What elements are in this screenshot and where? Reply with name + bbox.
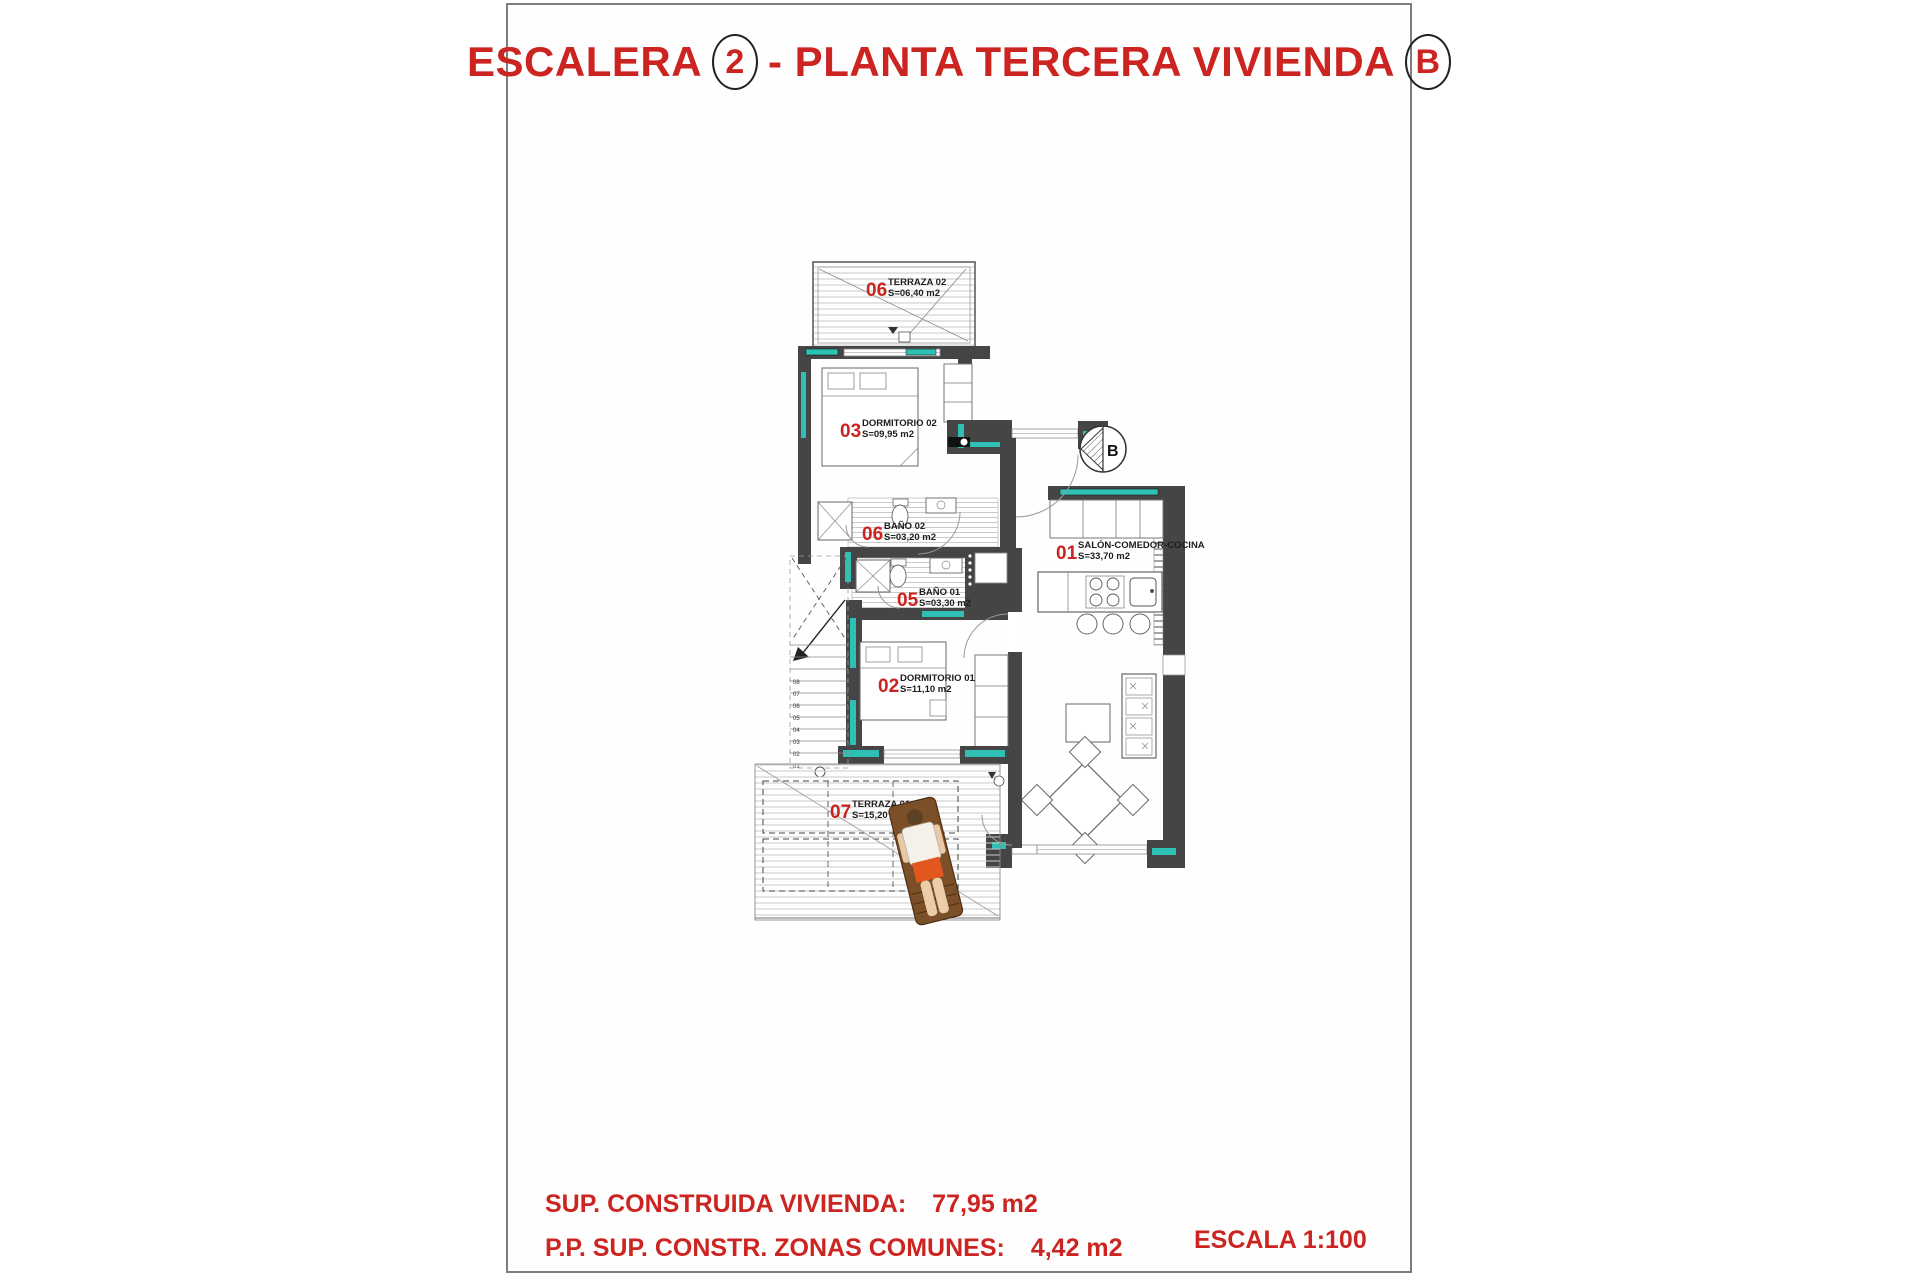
bathroom-01-number: 05 <box>897 590 919 611</box>
terrace-02-name: TERRAZA 02 <box>888 277 946 288</box>
staircase: 08 07 06 05 04 03 02 01 <box>790 556 848 777</box>
bathroom-02-area: S=03,20 m2 <box>884 532 936 543</box>
bedroom-01-name: DORMITORIO 01 <box>900 673 975 684</box>
orientation-marker: B <box>1080 426 1126 472</box>
stair-step-4: 04 <box>793 728 800 734</box>
orientation-letter: B <box>1107 443 1119 460</box>
stair-step-3: 03 <box>793 740 800 746</box>
terrace-01: 07 TERRAZA 01 S=15,20 m2 <box>755 764 1004 926</box>
terrace-02-area: S=06,40 m2 <box>888 288 940 299</box>
built-area-label: SUP. CONSTRUIDA VIVIENDA: <box>545 1190 906 1218</box>
terrace-02-number: 06 <box>866 280 887 301</box>
living-dining-kitchen: 01 SALÓN-COMEDOR-COCINA S=33,70 m2 <box>986 486 1205 868</box>
scale-note: ESCALA 1:100 <box>1194 1226 1367 1255</box>
terrace-02: 06 TERRAZA 02 S=06,40 m2 <box>813 262 975 348</box>
bedroom-01-area: S=11,10 m2 <box>900 684 952 695</box>
area-summary: SUP. CONSTRUIDA VIVIENDA:77,95 m2 P.P. S… <box>545 1182 1123 1270</box>
bedroom-01: 02 DORMITORIO 01 S=11,10 m2 <box>838 600 1010 764</box>
stair-step-8: 08 <box>793 680 800 686</box>
stair-step-2: 02 <box>793 752 800 758</box>
living-room-area: S=33,70 m2 <box>1078 551 1130 562</box>
common-zones-value: 4,42 m2 <box>1031 1234 1123 1262</box>
living-room-name: SALÓN-COMEDOR-COCINA <box>1078 539 1205 551</box>
bedroom-02-area: S=09,95 m2 <box>862 429 914 440</box>
bathroom-01-name: BAÑO 01 <box>919 587 961 598</box>
built-area-line: SUP. CONSTRUIDA VIVIENDA:77,95 m2 <box>545 1182 1123 1226</box>
living-room-number: 01 <box>1056 543 1078 564</box>
bedroom-02-name: DORMITORIO 02 <box>862 418 937 429</box>
built-area-value: 77,95 m2 <box>932 1190 1038 1218</box>
common-zones-label: P.P. SUP. CONSTR. ZONAS COMUNES: <box>545 1234 1005 1262</box>
common-zones-line: P.P. SUP. CONSTR. ZONAS COMUNES:4,42 m2 <box>545 1226 1123 1270</box>
stair-step-6: 06 <box>793 704 800 710</box>
stair-step-5: 05 <box>793 716 800 722</box>
bathroom-01: 05 BAÑO 01 S=03,30 m2 <box>840 547 1015 620</box>
terrace-01-number: 07 <box>830 802 851 823</box>
bathroom-01-area: S=03,30 m2 <box>919 598 971 609</box>
stair-step-7: 07 <box>793 692 800 698</box>
bedroom-01-number: 02 <box>878 676 899 697</box>
bathroom-02-number: 06 <box>862 524 883 545</box>
bathroom-02-name: BAÑO 02 <box>884 521 925 532</box>
floor-plan-drawing: 06 TERRAZA 02 S=06,40 m2 03 D <box>0 0 1920 1280</box>
bedroom-02-number: 03 <box>840 421 861 442</box>
